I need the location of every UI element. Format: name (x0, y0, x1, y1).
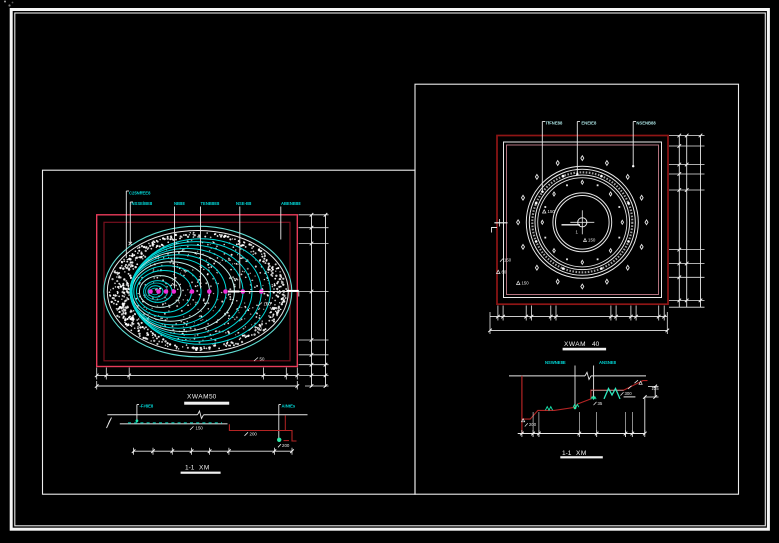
svg-text:1: 1 (576, 230, 579, 235)
svg-text:300: 300 (625, 391, 633, 396)
svg-text:C25NffEE8: C25NffEE8 (129, 191, 151, 196)
svg-text:1-1: 1-1 (185, 465, 195, 472)
svg-text:AiNtEs: AiNtEs (282, 404, 296, 409)
svg-text:XWAM: XWAM (187, 394, 209, 401)
svg-text:50: 50 (260, 357, 265, 362)
svg-text:TENB8E8: TENB8E8 (201, 201, 221, 206)
svg-text:NSE-B8: NSE-B8 (236, 201, 252, 206)
svg-text:XM: XM (199, 465, 210, 472)
svg-text:NSWNE8E: NSWNE8E (545, 360, 566, 365)
svg-text:1-1: 1-1 (562, 450, 572, 457)
svg-text:NSSElBE8: NSSElBE8 (132, 201, 153, 206)
svg-text:ENEIE8: ENEIE8 (581, 121, 597, 126)
svg-text:50: 50 (209, 394, 217, 401)
svg-text:60: 60 (502, 270, 507, 275)
svg-text:150: 150 (522, 281, 530, 286)
svg-text:150: 150 (504, 258, 512, 263)
svg-text:200: 200 (282, 443, 290, 448)
svg-text:35: 35 (598, 401, 603, 406)
svg-text:XWAM: XWAM (564, 341, 586, 348)
svg-text:200: 200 (250, 432, 258, 437)
svg-text:NB88: NB88 (174, 201, 185, 206)
svg-text:100: 100 (255, 326, 263, 331)
svg-text:150: 150 (196, 426, 204, 431)
svg-text:TfFNE88: TfFNE88 (545, 121, 563, 126)
svg-text:NSENB88: NSENB88 (636, 121, 656, 126)
svg-text:150: 150 (264, 302, 272, 307)
svg-text:40: 40 (592, 341, 600, 348)
svg-text:ABENB88: ABENB88 (281, 201, 301, 206)
svg-text:ANSNE8: ANSNE8 (599, 360, 617, 365)
svg-text:-F#8E8: -F#8E8 (140, 404, 154, 409)
svg-text:150: 150 (548, 209, 556, 214)
svg-text:XM: XM (576, 450, 587, 457)
svg-text:150: 150 (588, 238, 596, 243)
